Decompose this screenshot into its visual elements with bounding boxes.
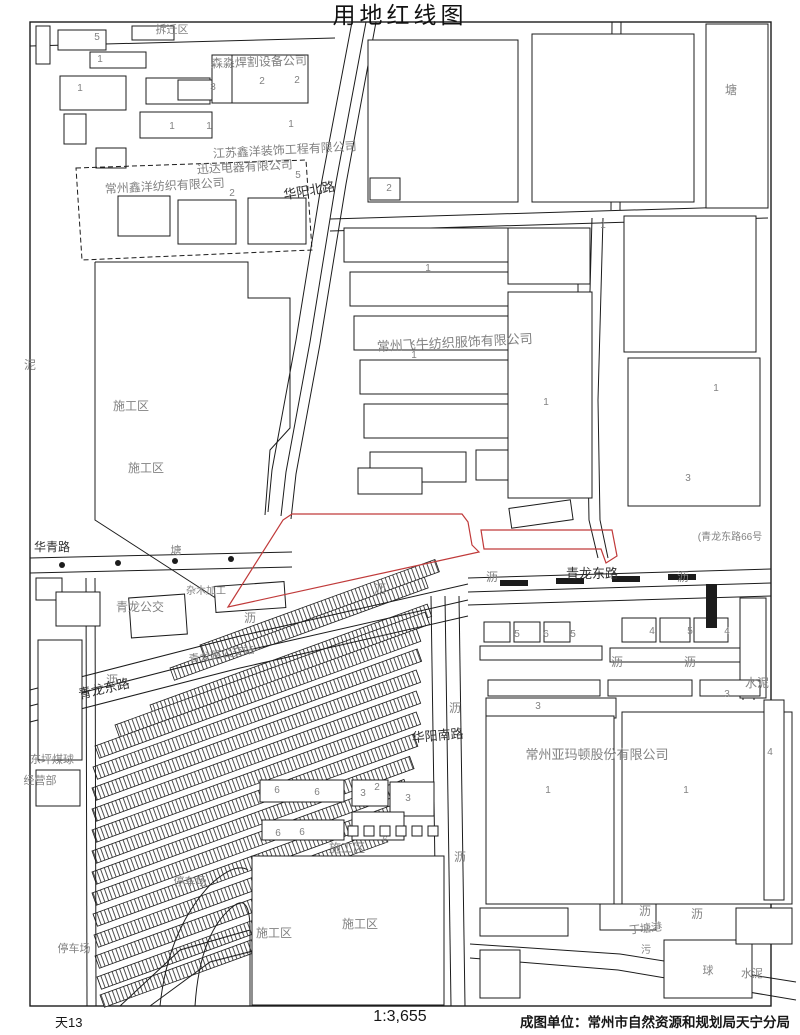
map-label: 施工区 [342, 917, 378, 931]
map-label: 6 [382, 835, 388, 846]
map-label: 1 [545, 785, 551, 796]
map-line [95, 578, 96, 1006]
building-outline [36, 26, 50, 64]
map-label: 停车场 [174, 874, 207, 888]
footing-pad [428, 826, 438, 836]
map-label: 1 [288, 119, 294, 130]
building-outline [608, 680, 692, 696]
tree-dot [115, 560, 121, 566]
map-label: 停车场 [58, 941, 91, 955]
road-median-bar [706, 584, 717, 628]
map-label: 华阳北路 [282, 179, 336, 203]
map-label: 6 [275, 828, 281, 839]
red-line-boundary [481, 530, 617, 563]
map-line [95, 262, 290, 515]
footing-pad [364, 826, 374, 836]
map-label: 1 [683, 785, 689, 796]
map-label: 3 [210, 82, 216, 93]
map-label: 5 [295, 170, 301, 181]
map-label: 1 [411, 350, 417, 361]
building-outline [480, 646, 602, 660]
map-label: 沥 [639, 904, 651, 918]
map-label: 2 [259, 76, 265, 87]
map-label: 塘 [725, 82, 737, 97]
building-outline [508, 228, 590, 284]
building-outline [370, 178, 400, 200]
map-label: 3 [405, 793, 411, 804]
map-label: 青龙东路 [566, 566, 618, 581]
building-outline [248, 198, 306, 244]
building-outline [736, 908, 792, 944]
building-outline [390, 782, 434, 816]
footing-pad [348, 826, 358, 836]
map-label: 3 [685, 473, 691, 484]
building-outline [358, 468, 422, 494]
building-outline [660, 618, 690, 642]
map-label: 3 [535, 701, 541, 712]
map-label: 水泥 [741, 967, 763, 980]
map-label: 施工区 [113, 399, 149, 413]
map-label: 施工区 [128, 461, 164, 475]
map-label: 常州亚玛顿股份有限公司 [525, 747, 668, 762]
map-label: 1 [169, 121, 175, 132]
map-line [86, 578, 87, 1006]
map-label: 经营部 [24, 773, 57, 787]
building-outline [532, 34, 694, 202]
map-sheet: 拆迁区森淼焊割设备公司322511111江苏鑫洋装饰工程有限公司迅达电器有限公司… [0, 0, 800, 1035]
building-outline [38, 640, 82, 760]
building-outline [140, 112, 212, 138]
map-label: 沥 [691, 907, 703, 921]
map-label: 施工区 [256, 926, 292, 940]
building-outline [508, 292, 592, 498]
building-outline [486, 698, 616, 718]
map-label: (青龙东路66号 [698, 530, 762, 543]
map-label: 沥 [611, 655, 623, 669]
map-canvas: 拆迁区森淼焊割设备公司322511111江苏鑫洋装饰工程有限公司迅达电器有限公司… [0, 0, 800, 1035]
building-outline [486, 716, 614, 904]
building-outline [624, 216, 756, 352]
map-label: 5 [514, 629, 520, 640]
map-label: 迅达电器有限公司 [196, 158, 293, 177]
map-label: 沥 [244, 611, 256, 625]
map-label: 泥 [24, 358, 36, 372]
map-label: 2 [294, 75, 300, 86]
map-label: 塘 [171, 543, 182, 557]
map-label: 水泥 [745, 676, 769, 690]
map-label: 青龙公交 [116, 599, 164, 614]
map-label: 1 [543, 397, 549, 408]
map-label: 沥 [486, 570, 498, 584]
building-outline [64, 114, 86, 144]
building-outline [352, 780, 388, 806]
map-label: 6 [543, 629, 549, 640]
map-label: 1 [97, 54, 103, 65]
map-label: 6 [314, 787, 320, 798]
map-label: 6 [299, 827, 305, 838]
page-title: 用地红线图 [0, 0, 800, 30]
road-median-bar [500, 580, 528, 586]
building-outline [260, 780, 344, 802]
map-label: 污 [641, 944, 651, 956]
footing-pad [412, 826, 422, 836]
building-outline [480, 908, 568, 936]
map-label: 沥 [374, 582, 386, 596]
map-label: 2 [386, 183, 392, 194]
map-label: 沥 [449, 701, 461, 715]
building-outline [56, 592, 100, 626]
building-outline [118, 196, 170, 236]
map-label: 5 [94, 32, 100, 43]
map-label: 球 [703, 963, 714, 977]
tree-dot [59, 562, 65, 568]
map-label: 1 [713, 383, 719, 394]
map-label: 4 [724, 626, 730, 637]
tree-dot [228, 556, 234, 562]
building-outline [96, 148, 126, 168]
map-label: 沥 [684, 655, 696, 669]
building-outline [509, 500, 573, 528]
footing-pad [396, 826, 406, 836]
map-label: 施工区 [329, 841, 365, 855]
building-outline [60, 76, 126, 110]
map-label: 东坪煤球 [30, 752, 74, 766]
map-label: 杂木加工 [186, 585, 226, 597]
map-label: 沥 [454, 850, 466, 864]
map-label: 沥 [677, 570, 689, 584]
map-label: 5 [570, 629, 576, 640]
building-outline [488, 680, 600, 696]
tree-dot [172, 558, 178, 564]
map-label: 1 [600, 220, 606, 231]
building-outline [610, 648, 752, 662]
map-label: 2 [229, 188, 235, 199]
map-label: 1 [425, 263, 431, 274]
map-line [459, 596, 465, 1006]
building-outline [764, 700, 784, 900]
map-label: 3 [360, 788, 366, 799]
building-outline [480, 950, 520, 998]
map-label: 华青路 [34, 539, 70, 554]
building-outline [628, 358, 760, 506]
building-outline [706, 24, 768, 208]
map-line [598, 218, 608, 558]
map-label: 3 [724, 689, 730, 700]
map-label: 4 [649, 626, 655, 637]
map-label: 1 [77, 83, 83, 94]
map-line [468, 596, 771, 605]
map-label: 6 [274, 785, 280, 796]
map-label: 4 [767, 747, 773, 758]
credit-text: 成图单位：常州市自然资源和规划局天宁分局 [520, 1011, 790, 1031]
map-label: 5 [687, 626, 693, 637]
map-line [445, 596, 451, 1006]
map-label: 2 [374, 782, 380, 793]
building-outline [178, 200, 236, 244]
map-label: 1 [206, 121, 212, 132]
building-outline [484, 622, 510, 642]
map-label: 常州鑫洋纺织有限公司 [104, 175, 225, 196]
map-label: 华阳南路 [411, 726, 464, 745]
